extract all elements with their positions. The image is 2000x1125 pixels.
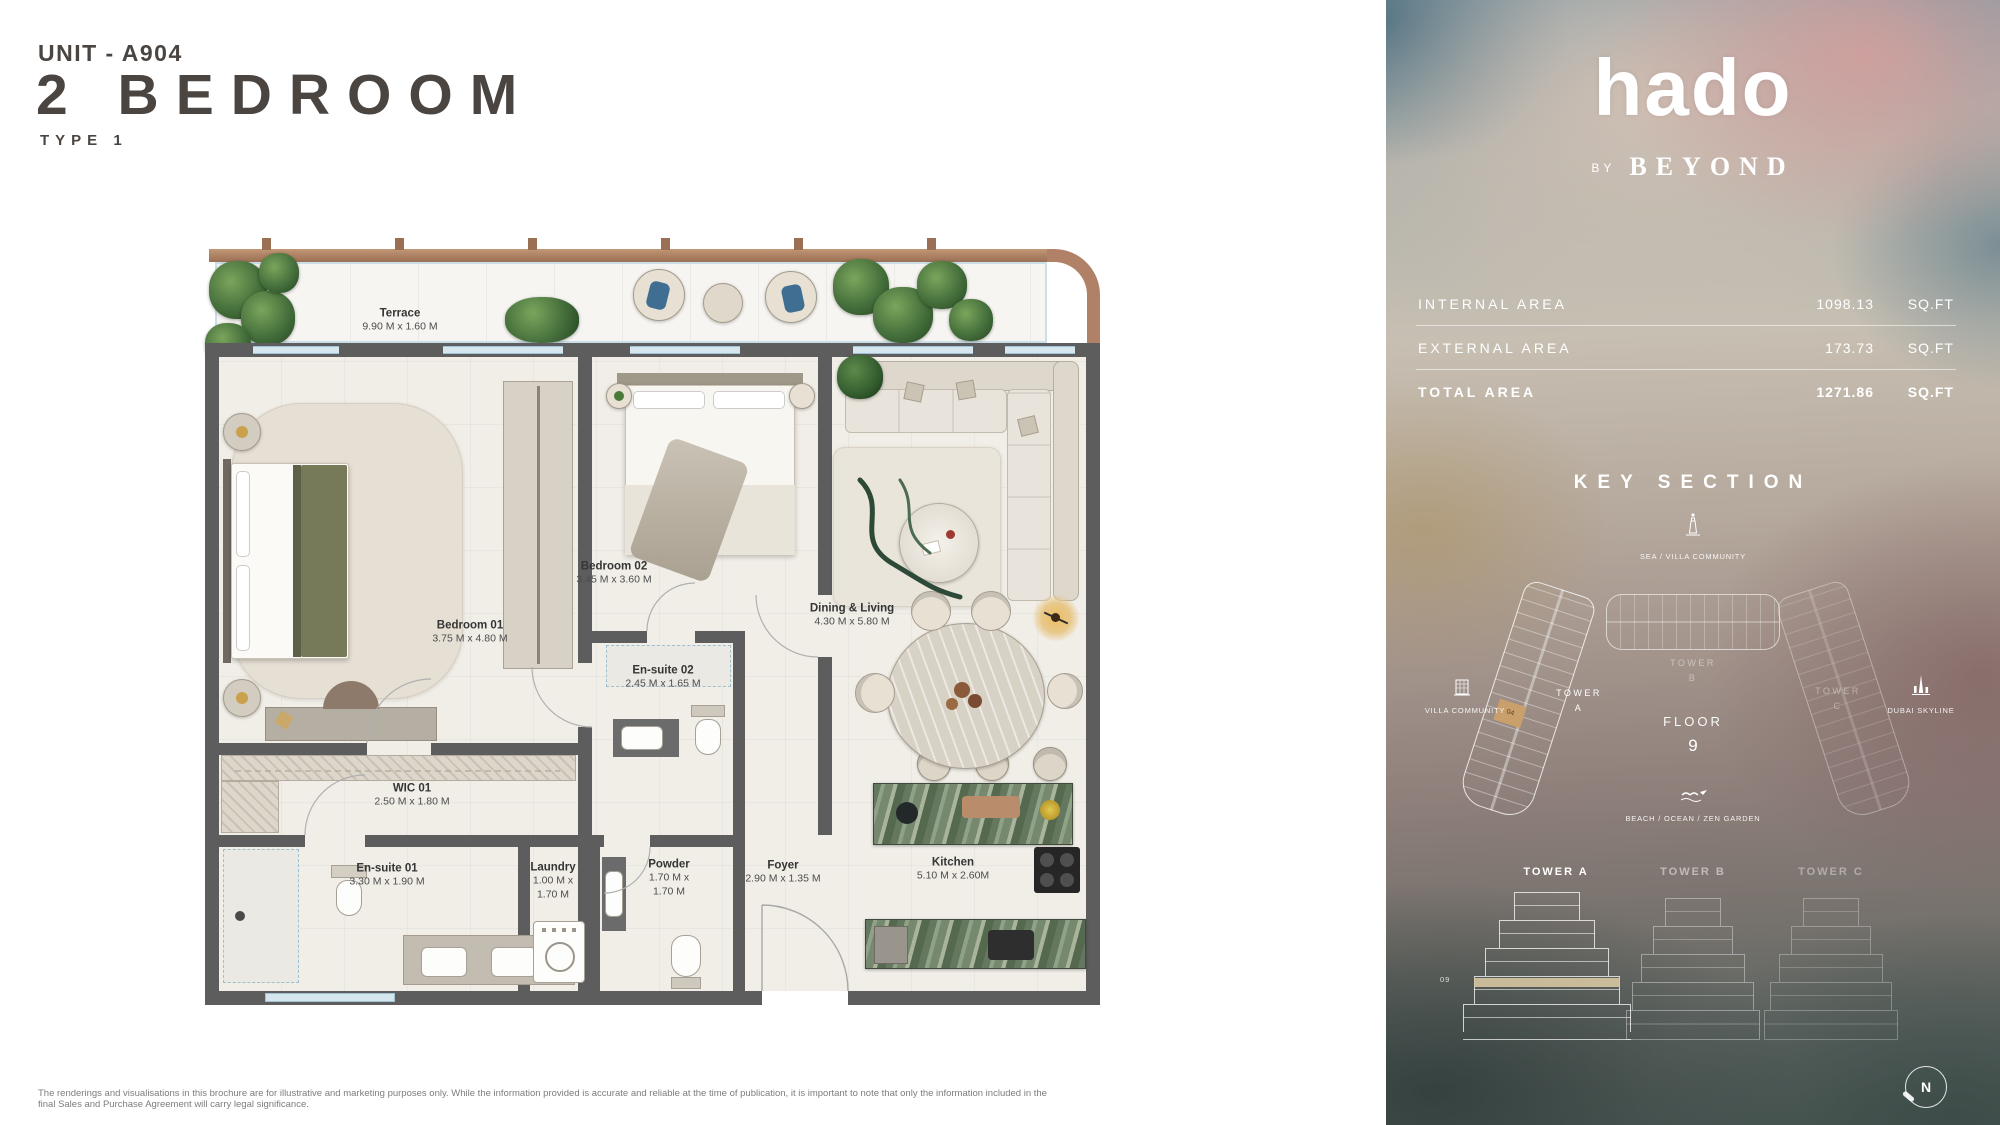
area-row-external: EXTERNAL AREA 173.73 SQ.FT: [1416, 326, 1956, 370]
shower-head: [235, 911, 245, 921]
elevation-tier: [1626, 1010, 1760, 1039]
wall: [848, 991, 1100, 1005]
info-panel: hado BYBEYOND INTERNAL AREA 1098.13 SQ.F…: [1386, 0, 2000, 1125]
compass-needle: [1902, 1090, 1915, 1102]
elevation-tier: [1803, 898, 1859, 926]
room-label-bedroom2: Bedroom 023.45 M x 3.60 M: [548, 559, 680, 587]
elevation-tier: [1463, 1004, 1631, 1032]
toilet: [695, 719, 721, 755]
elevation-tier: [1641, 954, 1745, 982]
elevation-tier: [1779, 954, 1883, 982]
bar-stool: [1033, 747, 1067, 781]
wall: [818, 357, 832, 595]
terrace-plant: [949, 299, 993, 341]
area-label: INTERNAL AREA: [1418, 296, 1567, 312]
floor-word: FLOOR: [1386, 714, 2000, 729]
dining-chair: [855, 673, 895, 713]
wall: [518, 835, 604, 847]
floor-number: 9: [1386, 736, 2000, 756]
nightstand: [223, 413, 261, 451]
elevation-label-tower-a: TOWER A: [1496, 866, 1616, 878]
railing-post: [528, 238, 537, 250]
tower-b-plate: [1606, 594, 1780, 650]
fruit: [954, 682, 970, 698]
terrace-side-table: [703, 283, 743, 323]
elevation-tier: [1770, 982, 1892, 1010]
floor-lamp: [1033, 595, 1079, 641]
wall: [205, 343, 219, 1005]
wall: [219, 743, 367, 755]
area-unit: SQ.FT: [1892, 384, 1954, 400]
appliance: [874, 926, 908, 964]
room-label-ensuite1: En-suite 013.30 M x 1.90 M: [321, 861, 453, 889]
kitchen-counter: [865, 919, 1086, 969]
elevation-tier: [1791, 926, 1871, 954]
wall: [578, 357, 592, 663]
window-glass: [853, 346, 973, 354]
throw-pillow: [956, 380, 977, 401]
sofa-chaise-back: [1053, 361, 1079, 601]
room-label-kitchen: Kitchen5.10 M x 2.60M: [887, 855, 1019, 883]
area-row-total: TOTAL AREA 1271.86 SQ.FT: [1416, 370, 1956, 413]
room-label-powder: Powder1.70 M x 1.70 M: [638, 858, 700, 899]
burner: [1060, 873, 1074, 887]
beach-waves-icon: [1676, 788, 1712, 806]
wall: [695, 631, 745, 643]
by-label: BY: [1591, 161, 1615, 175]
terrace-railing: [209, 249, 1047, 262]
sink: [621, 726, 663, 750]
elevation-tier: [1514, 892, 1580, 920]
area-unit: SQ.FT: [1892, 296, 1954, 312]
bed1-pillow: [236, 471, 250, 557]
fruit: [968, 694, 982, 708]
key-section-title: KEY SECTION: [1386, 472, 2000, 494]
washing-machine: [533, 921, 585, 983]
table-lamp: [236, 692, 248, 704]
north-letter: N: [1921, 1079, 1931, 1095]
elevation-tier: [1499, 920, 1595, 948]
bedside-table: [606, 383, 632, 409]
elevation-tier: [1632, 982, 1754, 1010]
developer-name: BEYOND: [1629, 152, 1794, 181]
window-glass: [265, 993, 395, 1002]
elevation-label-tower-b: TOWER B: [1633, 866, 1753, 878]
decor-card: [921, 540, 941, 556]
villa-community-icon: [1452, 676, 1472, 698]
bed1-throw: [293, 465, 301, 657]
bed1-headboard: [223, 459, 231, 663]
railing-post: [262, 238, 271, 250]
plant-pot: [614, 391, 624, 401]
elevation-label-tower-c: TOWER C: [1771, 866, 1891, 878]
railing-post: [794, 238, 803, 250]
chair-cushion: [780, 283, 805, 314]
lighthouse-icon: [1683, 512, 1703, 538]
elevation-tier: [1764, 1010, 1898, 1039]
area-value: 1271.86: [1816, 384, 1874, 400]
brand-logo: hado: [1386, 42, 2000, 134]
north-compass-icon: N: [1905, 1066, 1947, 1108]
room-label-ensuite2: En-suite 022.45 M x 1.65 M: [597, 663, 729, 691]
beach-ocean-label: BEACH / OCEAN / ZEN GARDEN: [1386, 814, 2000, 823]
room-label-foyer: Foyer2.90 M x 1.35 M: [717, 858, 849, 886]
lamp-bulb: [1051, 613, 1060, 622]
wall: [431, 743, 578, 755]
chair-cushion: [645, 280, 671, 311]
bed2-pillow: [633, 391, 705, 409]
kitchen-island: [873, 783, 1073, 845]
brochure-left-page: UNIT - A904 2 BEDROOM TYPE 1: [0, 0, 1386, 1125]
nightstand: [223, 679, 261, 717]
room-label-laundry: Laundry1.00 M x 1.70 M: [522, 861, 584, 902]
throw-pillow: [903, 381, 924, 402]
window-glass: [253, 346, 339, 354]
terrace-railing-curve: [1047, 249, 1100, 357]
fruit: [946, 698, 958, 710]
toilet-tank: [671, 977, 701, 989]
elevation-tier: [1485, 948, 1609, 976]
room-label-dining-living: Dining & Living4.30 M x 5.80 M: [786, 601, 918, 629]
type-label: TYPE 1: [40, 132, 128, 149]
terrace-plant: [259, 253, 299, 293]
wall: [592, 631, 647, 643]
page-title: 2 BEDROOM: [36, 62, 534, 128]
bed1-blanket: [301, 465, 347, 657]
tower-a-elevation: [1463, 892, 1631, 1040]
elevation-tier: [1665, 898, 1721, 926]
tower-b-elevation: [1626, 898, 1760, 1040]
toilet-tank: [691, 705, 725, 717]
room-label-terrace: Terrace9.90 M x 1.60 M: [334, 306, 466, 334]
serving-board: [962, 796, 1020, 818]
area-value: 1098.13: [1816, 296, 1874, 312]
dining-table: [887, 623, 1045, 769]
window-glass: [1005, 346, 1075, 354]
window-glass: [630, 346, 740, 354]
area-label: EXTERNAL AREA: [1418, 340, 1572, 356]
highlighted-floor-band: [1474, 978, 1620, 987]
closet-shelving: [221, 755, 576, 781]
dining-chair: [1047, 673, 1083, 709]
wall: [590, 847, 600, 991]
wardrobe-rod: [537, 386, 540, 664]
railing-post: [395, 238, 404, 250]
indoor-plant: [837, 355, 883, 399]
wall: [1086, 343, 1100, 1005]
closet-shelving: [221, 781, 279, 833]
tower-b-label: TOWER B: [1653, 656, 1733, 687]
room-label-wic1: WIC 012.50 M x 1.80 M: [346, 781, 478, 809]
sea-villa-label: SEA / VILLA COMMUNITY: [1386, 552, 2000, 561]
washer-knobs: [542, 928, 578, 932]
area-value: 173.73: [1825, 340, 1874, 356]
burner: [1040, 873, 1054, 887]
tower-c-elevation: [1764, 898, 1898, 1040]
vanity-counter: [265, 707, 437, 741]
dubai-skyline-icon: [1910, 674, 1932, 698]
toilet: [671, 935, 701, 977]
wall: [219, 835, 305, 847]
bowl: [896, 802, 918, 824]
brand-byline: BYBEYOND: [1386, 152, 2000, 182]
area-row-internal: INTERNAL AREA 1098.13 SQ.FT: [1416, 282, 1956, 326]
burner: [1040, 853, 1054, 867]
lounge-chair: [633, 269, 685, 321]
lounge-chair: [765, 271, 817, 323]
bedside-table: [789, 383, 815, 409]
table-lamp: [236, 426, 248, 438]
sink: [421, 947, 467, 977]
floor-badge: 09: [1440, 975, 1450, 984]
sink: [605, 871, 623, 917]
railing-post: [661, 238, 670, 250]
cooktop: [1034, 847, 1080, 893]
area-table: INTERNAL AREA 1098.13 SQ.FT EXTERNAL ARE…: [1416, 282, 1956, 413]
tower-a-label: TOWER A: [1539, 686, 1619, 717]
wall: [818, 657, 832, 835]
area-unit: SQ.FT: [1892, 340, 1954, 356]
sink: [491, 947, 537, 977]
wall: [650, 835, 733, 847]
dining-chair: [971, 591, 1011, 631]
bed1-pillow: [236, 565, 250, 651]
room-label-bedroom1: Bedroom 013.75 M x 4.80 M: [404, 618, 536, 646]
bed2-pillow: [713, 391, 785, 409]
railing-post: [927, 238, 936, 250]
decor-dot: [946, 530, 955, 539]
terrace-plant: [505, 297, 579, 343]
coffee-table: [899, 503, 979, 583]
burner: [1060, 853, 1074, 867]
flowers: [1040, 800, 1060, 820]
wall: [733, 643, 745, 991]
washer-door: [545, 942, 575, 972]
disclaimer-text: The renderings and visualisations in thi…: [38, 1088, 1048, 1110]
elevation-tier: [1653, 926, 1733, 954]
kitchen-sink: [988, 930, 1034, 960]
bed2-headboard: [617, 373, 803, 385]
area-label: TOTAL AREA: [1418, 384, 1536, 400]
floor-plan: Terrace9.90 M x 1.60 M Bedroom 013.75 M …: [205, 235, 1100, 1005]
window-glass: [443, 346, 563, 354]
